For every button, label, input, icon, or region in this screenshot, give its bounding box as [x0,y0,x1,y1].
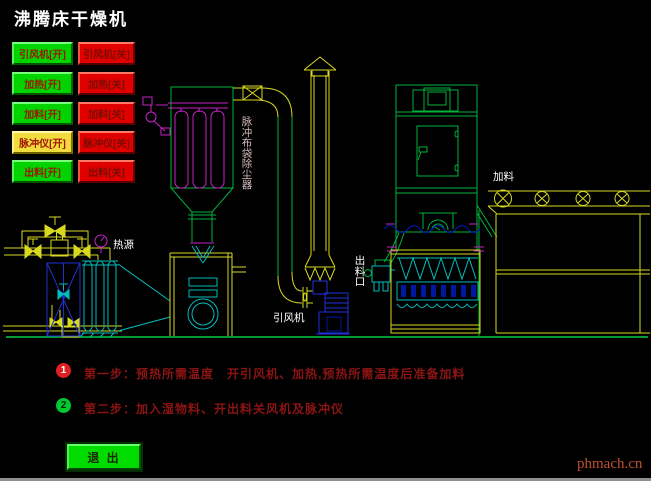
feed-label: 加料 [493,172,514,183]
step-1-badge: 1 [56,363,71,378]
step-2-badge: 2 [56,398,71,413]
filter-bags [175,111,224,188]
intake-filter [47,263,80,336]
exhaust-duct-top [233,86,292,117]
step-1-text: 第一步：预热所需温度 开引风机、加热,预热所需温度后准备加料 [84,365,465,382]
hmi-screen: { "title": "沸腾床干燥机", "theme": { "backgro… [0,0,651,481]
screw-conveyor [397,258,478,308]
exhaust-stack [304,57,336,280]
induced-fan [313,281,350,334]
screw-slots [401,285,476,297]
fan-inlet-elbow [278,272,313,308]
feed-conveyor [488,190,650,214]
induced-fan-label: 引风机 [273,313,305,324]
tower-door [417,126,458,176]
downcomer-duct [278,117,292,276]
dust-collector-label: 脉冲布袋除尘器 [241,117,253,191]
pulse-header [143,97,228,135]
feed-platform [496,214,650,333]
heat-source-label: 热源 [113,240,134,251]
discharge-port-label: 出料口 [354,256,366,288]
material-level-wave [384,226,480,233]
exit-button[interactable]: 退 出 [67,444,141,470]
watermark: phmach.cn [577,456,642,473]
step-2-text: 第二步：加入湿物料、开出料关风机及脉冲仪 [84,400,344,417]
pressure-gauge [95,235,107,253]
dryer-tower [396,85,497,336]
rotary-valve [188,246,218,329]
